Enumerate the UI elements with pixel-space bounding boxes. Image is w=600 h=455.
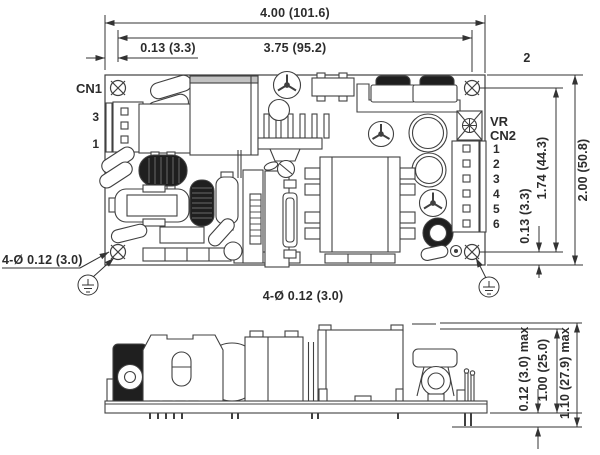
vr-potentiometer <box>457 111 482 140</box>
film-capacitor <box>139 104 192 153</box>
mounting-hole-tr <box>465 81 480 96</box>
mounting-holes-note: 4-Ø 0.12 (3.0) <box>263 289 344 303</box>
mounting-holes-callout: 4-Ø 0.12 (3.0) <box>2 253 83 267</box>
dim-pin-protrusion: 0.12 (3.0) max <box>517 327 531 412</box>
dim-overall-height: 2.00 (50.8) <box>576 139 590 202</box>
mounting-hole-bl <box>111 245 126 260</box>
cn2-connector <box>452 141 486 232</box>
dim-hole-offset-x: 0.13 (3.3) <box>140 41 196 55</box>
cn1-label: CN1 <box>76 81 102 96</box>
cn2-pin-label: 1 <box>493 142 500 156</box>
mounting-hole-tl <box>111 81 126 96</box>
transformer <box>305 157 415 263</box>
side-capacitor-block <box>245 331 303 403</box>
dim-overall-width: 4.00 (101.6) <box>260 6 330 20</box>
mechanical-drawing-page: 4.00 (101.6) 3.75 (95.2) 0.13 (3.3) 2 2.… <box>0 0 600 455</box>
side-connector-pins <box>457 369 475 403</box>
dim-hole-pitch-x: 3.75 (95.2) <box>264 41 327 55</box>
side-output-capacitor <box>413 349 457 403</box>
side-pcb-pins <box>150 413 471 426</box>
pcb-top-view <box>97 72 486 268</box>
cn1-pin3-label: 3 <box>92 110 99 124</box>
mounting-hole-br <box>465 245 480 260</box>
dim-overall-height-side: 1.10 (27.9) max <box>558 327 572 419</box>
cn2-label: CN2 <box>490 128 516 143</box>
side-toroid <box>107 344 147 404</box>
cn2-pin-label: 2 <box>493 157 500 171</box>
cn2-pin-label: 4 <box>493 187 500 201</box>
earth-symbol-right <box>479 277 499 297</box>
note-ref: 2 <box>523 51 530 65</box>
cn2-pin-label: 6 <box>493 217 500 231</box>
drawing-canvas: 4.00 (101.6) 3.75 (95.2) 0.13 (3.3) 2 2.… <box>0 0 600 455</box>
dim-hole-pitch-y: 1.74 (44.3) <box>535 137 549 200</box>
side-component-block <box>318 325 403 403</box>
pcb-side-view <box>105 325 487 426</box>
bulk-capacitor-horizontal <box>109 185 189 226</box>
cn2-pin-label: 5 <box>493 202 500 216</box>
cn1-pin1-label: 1 <box>92 137 99 151</box>
emi-filter-block <box>190 76 258 155</box>
side-pcb-bar <box>105 401 487 413</box>
cn2-pin-label: 3 <box>493 172 500 186</box>
cn1-connector <box>106 102 143 152</box>
side-transformer <box>143 335 223 411</box>
vr-label: VR <box>490 114 509 129</box>
dim-hole-offset-y: 0.13 (3.3) <box>518 188 532 244</box>
earth-symbol-left <box>78 275 98 295</box>
dim-component-height: 1.00 (25.0) <box>536 339 550 402</box>
toroid-inductor <box>139 152 187 189</box>
